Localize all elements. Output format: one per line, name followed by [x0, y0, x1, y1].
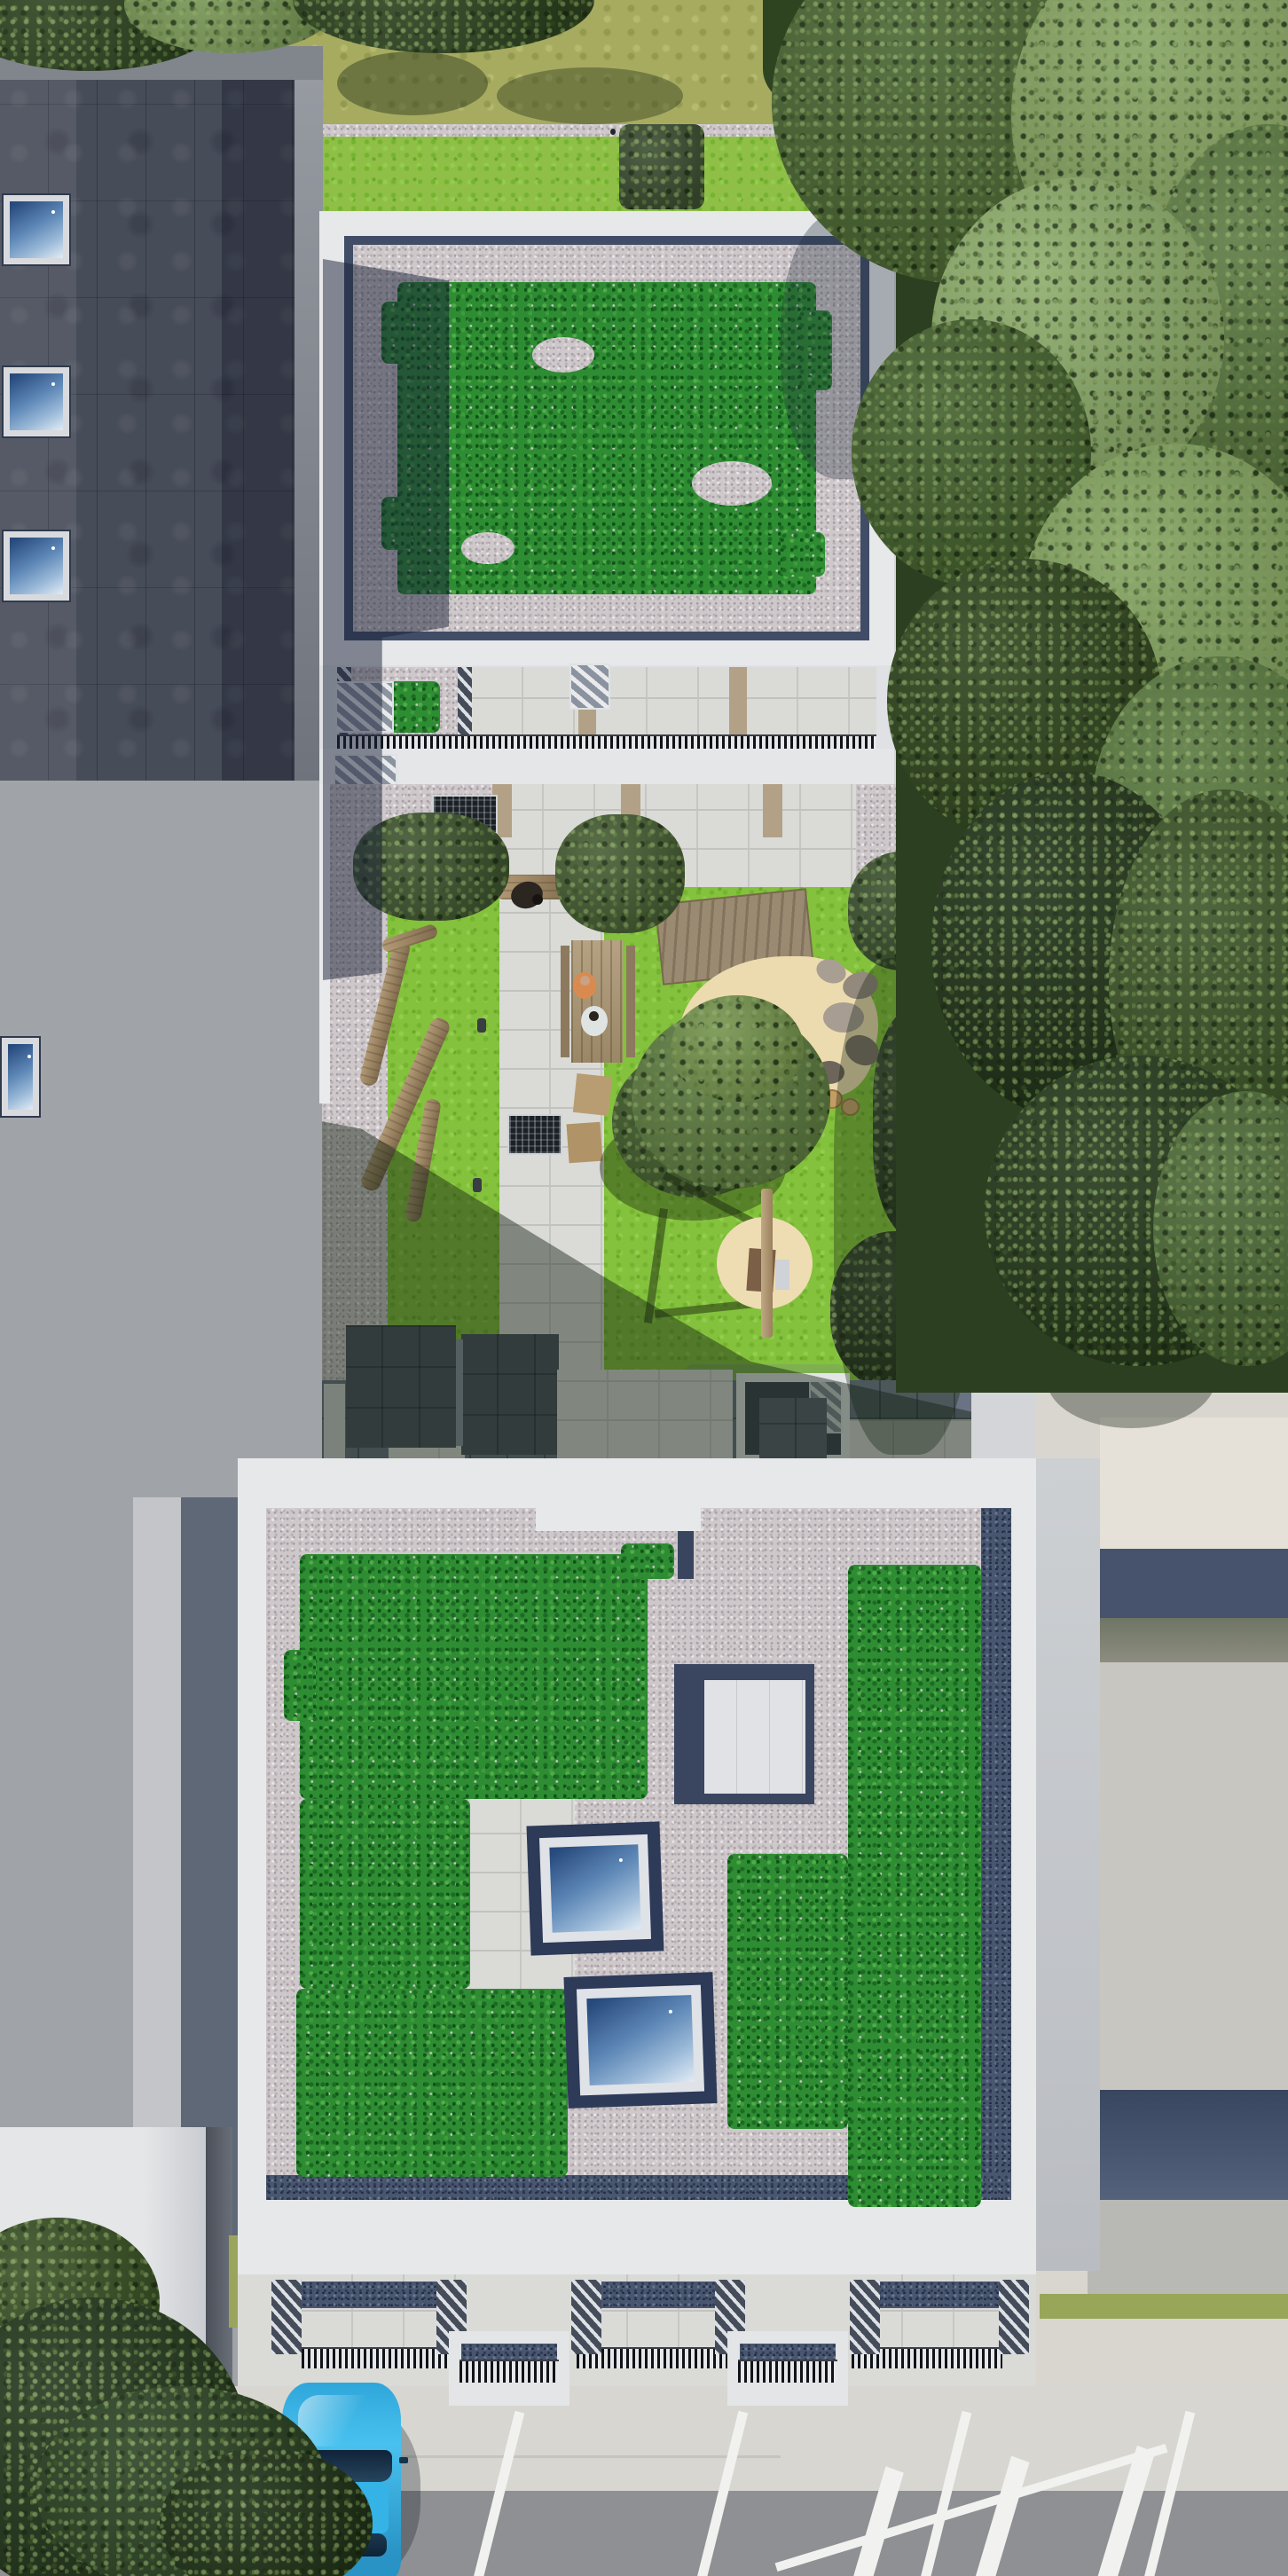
- picnic-bench: [561, 946, 569, 1057]
- terrace-gravel-strip: [461, 2344, 557, 2360]
- picnic-table: [571, 940, 623, 1063]
- parapet-notch: [536, 1508, 701, 1531]
- bollard-light: [473, 1178, 482, 1192]
- sedum-bump: [781, 532, 825, 577]
- west-wall-cap: [319, 784, 330, 1103]
- stair-landing: [324, 1384, 345, 1458]
- skylight-glass: [8, 1044, 33, 1110]
- dark-roof-shaded-edge: [222, 80, 295, 781]
- terrace-paving: [472, 667, 578, 736]
- person-head: [589, 1011, 599, 1021]
- car-mirror: [399, 2457, 408, 2463]
- privacy-screen: [850, 2280, 880, 2354]
- boulder: [823, 1002, 864, 1033]
- skylight-window-1: [2, 193, 71, 266]
- swing-seat-light: [775, 1260, 789, 1290]
- louvre-canopy: [569, 664, 610, 710]
- bollard-light: [477, 1018, 486, 1033]
- stair-bulkhead: [346, 1325, 456, 1448]
- path-light: [610, 129, 616, 135]
- courtyard-tree-highlight: [671, 995, 804, 1102]
- privacy-screen: [999, 2280, 1029, 2354]
- grass-verge: [1040, 2294, 1288, 2319]
- privacy-screen: [271, 2280, 302, 2354]
- seat-cushion: [567, 1122, 603, 1164]
- neighbor-gray-2: [1088, 2200, 1288, 2296]
- entrance-core: [759, 1398, 827, 1464]
- car-hood-highlight: [298, 2395, 385, 2446]
- sedum-bump: [621, 1543, 674, 1579]
- skylight-glass: [10, 201, 63, 258]
- picnic-bench: [626, 946, 635, 1057]
- louvre-canopy: [335, 681, 394, 733]
- stair-landing: [843, 1419, 971, 1458]
- neighbor-gray-roof: [1100, 1662, 1288, 2090]
- seat-cushion: [573, 1073, 612, 1116]
- roof-skylight-1: [526, 1821, 664, 1955]
- skylight-glass: [549, 1844, 640, 1932]
- box-hedge: [619, 124, 704, 209]
- drain-grate: [507, 1114, 562, 1155]
- terrace-divider: [763, 784, 782, 837]
- roof-skylight-2: [563, 1972, 717, 2109]
- roof-navy-border-east: [981, 1508, 1011, 2200]
- skylight-glass: [10, 538, 63, 594]
- sedum-bump: [381, 302, 417, 364]
- stair-bulkhead: [461, 1334, 559, 1455]
- neighbor-navy-band-2: [1088, 2090, 1288, 2200]
- front-sedum-right-column: [848, 1565, 981, 2207]
- bulkhead-railing: [456, 1339, 463, 1446]
- privacy-screen: [571, 2280, 601, 2354]
- person-head: [532, 894, 543, 905]
- terrace-paving: [596, 667, 729, 736]
- sedum-bump: [284, 1650, 316, 1721]
- sedum-gap: [461, 532, 514, 564]
- skylight-window-4: [0, 1036, 41, 1118]
- rear-roof-sedum: [397, 282, 816, 594]
- aerial-site-render: Top-down aerial 3D architectural renderi…: [0, 0, 1288, 2576]
- person-head: [580, 976, 590, 986]
- shrub-group: [555, 814, 685, 933]
- skylight-window-2: [2, 365, 71, 438]
- sedum-bump: [381, 497, 413, 550]
- skylight-window-3: [2, 530, 71, 602]
- front-sedum-left-bottom: [296, 1989, 568, 2177]
- skylight-glass: [586, 1995, 694, 2085]
- entrance-apron-2: [557, 1370, 733, 1458]
- neighbor-navy-band: [1100, 1549, 1288, 1618]
- terrace-railing-screen: [458, 667, 472, 736]
- terrace-paving: [747, 667, 876, 736]
- roof-hatch-box: [704, 1680, 805, 1794]
- terrace-divider: [729, 667, 747, 736]
- front-sedum-left-column: [300, 1799, 470, 1989]
- terrace-railing: [738, 2360, 837, 2383]
- front-block-east-wall: [1036, 1458, 1100, 2271]
- front-sedum-right-arm: [727, 1854, 848, 2129]
- skylight-glass: [10, 373, 63, 430]
- terrace-slab-edge: [319, 749, 894, 784]
- sedum-gap: [692, 461, 772, 506]
- terrace-front-railing: [337, 734, 876, 749]
- terrace-railing: [459, 2360, 559, 2383]
- timber-round: [841, 1098, 860, 1116]
- neighbor-cream-roof: [1100, 1418, 1288, 1549]
- swing-beam: [761, 1189, 773, 1338]
- terrace-gravel-strip: [740, 2344, 836, 2360]
- front-sedum-left-bar: [300, 1554, 648, 1799]
- neighbor-olive-band: [1100, 1618, 1288, 1662]
- sedum-bump: [798, 310, 832, 390]
- shrub-group: [353, 813, 509, 921]
- notch-shadow-nub: [678, 1531, 694, 1579]
- sedum-gap: [532, 337, 594, 373]
